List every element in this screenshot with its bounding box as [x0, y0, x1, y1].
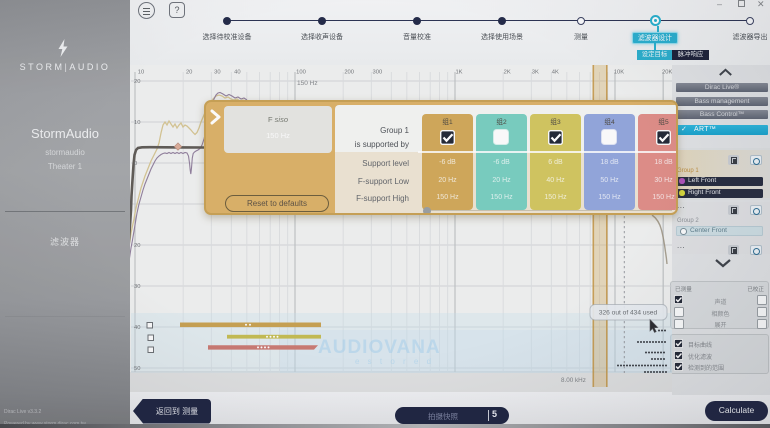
svg-text:3K: 3K [532, 70, 539, 76]
svg-text:50: 50 [134, 366, 140, 372]
svg-text:e s t o r e d: e s t o r e d [355, 357, 434, 366]
svg-text:10: 10 [138, 70, 144, 76]
svg-text:100: 100 [296, 70, 306, 76]
svg-text:20: 20 [134, 243, 140, 249]
svg-text:8.00 kHz: 8.00 kHz [561, 377, 586, 384]
svg-text:40: 40 [134, 325, 140, 331]
svg-text:150 Hz: 150 Hz [297, 80, 318, 87]
svg-text:30: 30 [214, 70, 220, 76]
svg-text:1K: 1K [455, 70, 462, 76]
svg-text:326 out of 434 used: 326 out of 434 used [599, 310, 658, 317]
svg-text:10: 10 [134, 120, 140, 126]
svg-text:10K: 10K [614, 70, 624, 76]
svg-text:30: 30 [134, 284, 140, 290]
svg-text:20: 20 [186, 70, 192, 76]
svg-text:0: 0 [134, 161, 137, 167]
svg-text:40: 40 [234, 70, 240, 76]
svg-text:2K: 2K [504, 70, 511, 76]
svg-text:20K: 20K [662, 70, 672, 76]
svg-text:AUDIOVANA: AUDIOVANA [318, 337, 441, 358]
svg-text:300: 300 [373, 70, 383, 76]
svg-text:20: 20 [134, 79, 140, 85]
svg-text:4K: 4K [552, 70, 559, 76]
svg-text:200: 200 [344, 70, 354, 76]
